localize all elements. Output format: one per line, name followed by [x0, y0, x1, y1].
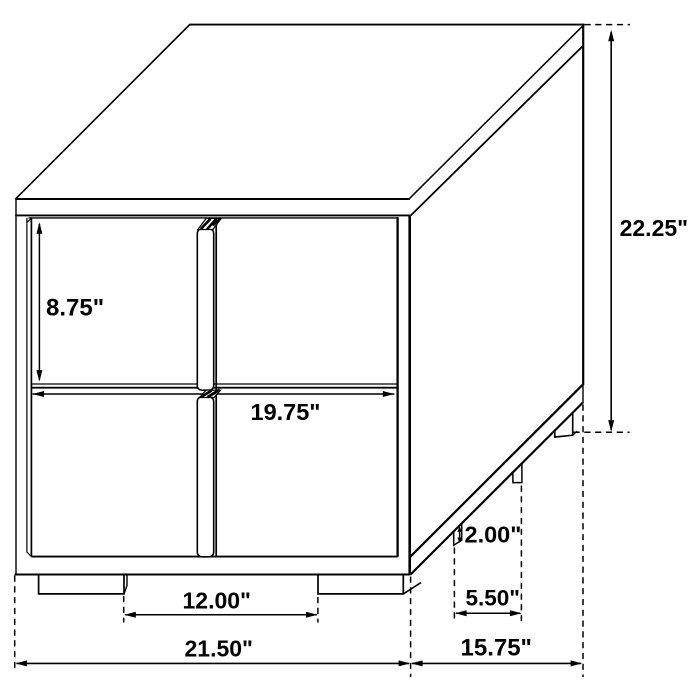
svg-text:21.50": 21.50"	[185, 636, 253, 662]
svg-text:2.00": 2.00"	[465, 522, 522, 548]
svg-text:12.00": 12.00"	[183, 588, 251, 614]
svg-text:5.50": 5.50"	[466, 586, 520, 611]
svg-text:19.75": 19.75"	[251, 399, 321, 425]
svg-text:15.75": 15.75"	[461, 635, 532, 662]
svg-text:8.75": 8.75"	[46, 295, 104, 322]
svg-text:22.25": 22.25"	[620, 215, 688, 241]
